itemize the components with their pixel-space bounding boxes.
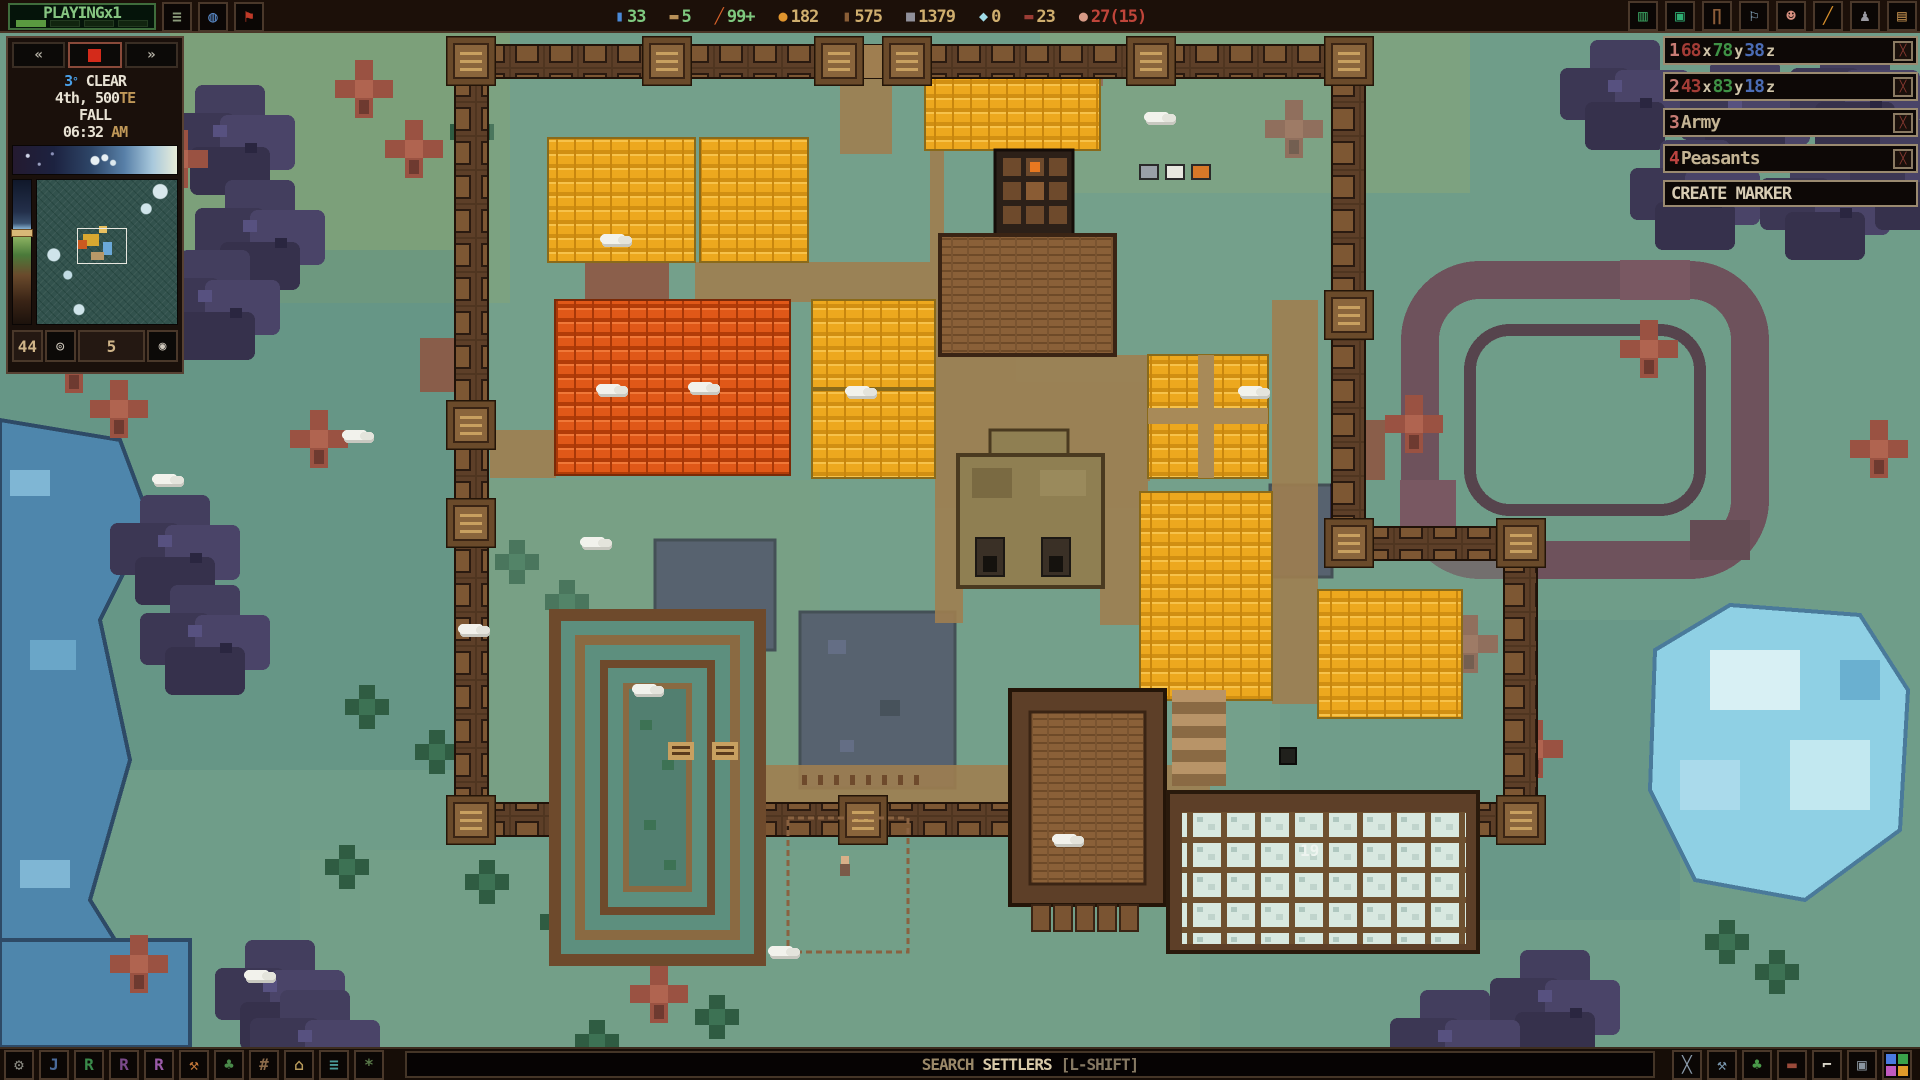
marker-x-value: 68 <box>1681 40 1701 61</box>
resource-stone[interactable]: ■1379 <box>906 7 955 27</box>
resource-settlers[interactable]: ●27(15) <box>1079 7 1146 27</box>
palette-cell <box>1886 1054 1896 1064</box>
marker-row-4[interactable]: 4 Peasants ╳ <box>1663 144 1918 173</box>
plants-icon[interactable]: ♣ <box>214 1050 244 1080</box>
marker-label: Peasants <box>1681 148 1760 169</box>
marker-y-label: y <box>1734 78 1742 96</box>
menu-list-icon-glyph: ≡ <box>172 9 182 25</box>
gem-icon-glyph: ▣ <box>1675 8 1685 24</box>
marker-z-value: 38 <box>1744 40 1764 61</box>
resource-wood[interactable]: ▮575 <box>842 7 882 27</box>
resource-vegetables[interactable]: ╱99+ <box>715 7 755 27</box>
marker-z-value: 18 <box>1744 76 1764 97</box>
dig-tool-icon-glyph: ⚒ <box>189 1057 199 1073</box>
top-bar: PLAYINGx1 ≡◍⚑ ▮33▬5╱99+●182▮575■1379◆0▬2… <box>0 0 1920 33</box>
overview-icon[interactable]: ▥ <box>1628 1 1658 31</box>
scroll-icon-glyph: ⚐ <box>1749 8 1759 24</box>
resource-meat[interactable]: ▬23 <box>1024 7 1055 27</box>
build-hammer-icon[interactable]: ⚒ <box>1707 1050 1737 1080</box>
meat-icon: ▬ <box>1024 9 1032 24</box>
play-speed-button[interactable]: PLAYINGx1 <box>8 3 156 30</box>
search-target: SETTLERS <box>983 1055 1052 1074</box>
speed-segment <box>50 20 80 27</box>
anvil-icon[interactable]: ∏ <box>1702 1 1732 31</box>
anvil-icon-glyph: ∏ <box>1712 8 1722 24</box>
minimap-viewport[interactable] <box>77 228 127 264</box>
list-panel-icon[interactable]: ≡ <box>319 1050 349 1080</box>
meat-count: 23 <box>1036 7 1054 27</box>
stairs[interactable] <box>1172 690 1226 786</box>
speed-segment <box>84 20 114 27</box>
floors-grid-icon-glyph: # <box>259 1057 269 1073</box>
field-yellow-6[interactable] <box>1140 492 1272 700</box>
marker-remove-button[interactable]: ╳ <box>1893 41 1913 61</box>
ledger-icon[interactable]: ▤ <box>1887 1 1917 31</box>
structures-icon[interactable]: ⌂ <box>284 1050 314 1080</box>
marker-y-value: 78 <box>1713 40 1733 61</box>
time-value: 06:32 <box>63 123 103 141</box>
water-count: 33 <box>627 7 645 27</box>
speed-controls: « » <box>12 42 178 68</box>
lock-icon[interactable]: ▣ <box>1847 1050 1877 1080</box>
armor-icon-glyph: ♟ <box>1860 8 1870 24</box>
lock-icon-glyph: ▣ <box>1857 1057 1867 1073</box>
marker-row-2[interactable]: 2 43 x 83 y 18 z ╳ <box>1663 72 1918 101</box>
ledger-icon-glyph: ▤ <box>1897 8 1907 24</box>
game-screen: 19 <box>0 0 1920 1080</box>
bottom-bar: ⚙JRRR⚒♣#⌂≡* SEARCH SETTLERS [L-SHIFT] ╳⚒… <box>0 1047 1920 1080</box>
search-settlers-bar[interactable]: SEARCH SETTLERS [L-SHIFT] <box>405 1051 1655 1078</box>
marker-y-value: 83 <box>1713 76 1733 97</box>
speed-segment <box>118 20 148 27</box>
marker-remove-button[interactable]: ╳ <box>1893 113 1913 133</box>
marker-row-1[interactable]: 1 68 x 78 y 38 z ╳ <box>1663 36 1918 65</box>
cancel-cross-icon-glyph: ╳ <box>1682 1057 1692 1073</box>
marker-z-label: z <box>1766 42 1774 60</box>
season-label: FALL <box>12 107 178 124</box>
bed-icon[interactable]: ▬ <box>1777 1050 1807 1080</box>
frame-corner-icon-glyph: ⌐ <box>1822 1057 1832 1073</box>
marker-index: 4 <box>1669 148 1679 169</box>
settlers-icon: ● <box>1079 9 1087 24</box>
marker-remove-button[interactable]: ╳ <box>1893 77 1913 97</box>
world-icon[interactable]: ◍ <box>198 2 228 32</box>
settings-gear-icon-glyph: ⚙ <box>14 1057 24 1073</box>
jobs-icon-glyph: J <box>49 1057 59 1073</box>
wand-icon[interactable]: ╱ <box>1813 1 1843 31</box>
zones-icon[interactable]: R <box>109 1050 139 1080</box>
top-right-icons: ▥▣∏⚐☻╱♟▤ <box>1628 1 1917 31</box>
zones-icon-glyph: R <box>119 1057 129 1073</box>
minimap-zoom-in-button[interactable]: ◉ <box>147 330 178 362</box>
clover-icon[interactable]: ♣ <box>1742 1050 1772 1080</box>
areas-icon[interactable]: R <box>144 1050 174 1080</box>
floors-grid-icon[interactable]: # <box>249 1050 279 1080</box>
clover-icon-glyph: ♣ <box>1752 1057 1762 1073</box>
temperature-unit: ° <box>72 75 78 88</box>
marker-z-label: z <box>1766 78 1774 96</box>
search-hotkey: [L-SHIFT] <box>1061 1055 1139 1074</box>
marker-remove-button[interactable]: ╳ <box>1893 149 1913 169</box>
build-hammer-icon-glyph: ⚒ <box>1717 1057 1727 1073</box>
storage-yard[interactable]: 19 <box>1168 792 1478 952</box>
marker-x-value: 43 <box>1681 76 1701 97</box>
fruit-icon: ● <box>779 9 787 24</box>
resource-ice[interactable]: ◆0 <box>979 7 1000 27</box>
wood-icon: ▮ <box>842 9 850 24</box>
crate-row[interactable] <box>1032 905 1138 931</box>
settings-gear-icon[interactable]: ⚙ <box>4 1050 34 1080</box>
fruit-count: 182 <box>791 7 819 27</box>
list-panel-icon-glyph: ≡ <box>329 1057 339 1073</box>
speed-segment <box>16 20 46 27</box>
cancel-cross-icon[interactable]: ╳ <box>1672 1050 1702 1080</box>
effects-icon[interactable]: * <box>354 1050 384 1080</box>
temperature-value: 3 <box>64 72 72 90</box>
marker-x-label: x <box>1703 42 1711 60</box>
weather-condition: CLEAR <box>86 72 126 90</box>
rations-icon: ▬ <box>670 9 678 24</box>
stop-icon <box>88 49 101 62</box>
rooms-icon[interactable]: R <box>74 1050 104 1080</box>
date-era: TE <box>119 89 135 107</box>
marker-x-label: x <box>1703 78 1711 96</box>
workshop-building[interactable] <box>1010 690 1165 905</box>
temperature-line: 3° CLEAR <box>12 73 178 90</box>
menu-list-icon[interactable]: ≡ <box>162 2 192 32</box>
time-meridiem: AM <box>111 123 127 141</box>
status-panel: « » 3° CLEAR 4th, 500TE FALL 06:32 AM <box>6 36 184 374</box>
settlers-count: 27(15) <box>1091 7 1146 27</box>
kiln-building[interactable] <box>958 430 1103 587</box>
bed-icon-glyph: ▬ <box>1787 1057 1797 1073</box>
date-value: 4th, 500 <box>55 89 119 107</box>
create-marker-button[interactable]: CREATE MARKER <box>1663 180 1918 207</box>
resource-fruit[interactable]: ●182 <box>779 7 819 27</box>
market-stalls[interactable] <box>1140 165 1210 179</box>
elevation-marker[interactable] <box>11 229 33 237</box>
vegetables-icon: ╱ <box>715 9 723 24</box>
flag-icon[interactable]: ⚑ <box>234 2 264 32</box>
field-yellow-5[interactable] <box>812 390 935 478</box>
wand-icon-glyph: ╱ <box>1823 8 1833 24</box>
top-left-icons: ≡◍⚑ <box>162 2 264 32</box>
flag-icon-glyph: ⚑ <box>244 9 254 25</box>
counter-right: 5 <box>78 330 146 362</box>
armor-icon[interactable]: ♟ <box>1850 1 1880 31</box>
marker-label: Army <box>1681 112 1720 133</box>
field-yellow-4[interactable] <box>812 300 935 388</box>
marker-y-label: y <box>1734 42 1742 60</box>
time-line: 06:32 AM <box>12 124 178 141</box>
date-line: 4th, 500TE <box>12 90 178 107</box>
stone-count: 1379 <box>918 7 955 27</box>
gem-icon[interactable]: ▣ <box>1665 1 1695 31</box>
smokehouse[interactable] <box>995 150 1073 235</box>
bottom-left-tools: ⚙JRRR⚒♣#⌂≡* <box>4 1050 384 1080</box>
scroll-icon[interactable]: ⚐ <box>1739 1 1769 31</box>
speed-faster-button[interactable]: » <box>125 42 178 68</box>
daylight-bar[interactable] <box>12 145 178 175</box>
field-yellow-7[interactable] <box>1318 590 1462 718</box>
overview-icon-glyph: ▥ <box>1638 8 1648 24</box>
ice-count: 0 <box>991 7 1000 27</box>
rooms-icon-glyph: R <box>84 1057 94 1073</box>
palette-cell <box>1898 1066 1908 1076</box>
face-icon[interactable]: ☻ <box>1776 1 1806 31</box>
markers-panel: 1 68 x 78 y 38 z ╳ 2 43 x 83 y 18 z ╳ 3 … <box>1663 36 1918 207</box>
storage-count-label: 19 <box>1300 841 1319 860</box>
wood-count: 575 <box>854 7 882 27</box>
rations-count: 5 <box>682 7 691 27</box>
jobs-icon[interactable]: J <box>39 1050 69 1080</box>
coal-bin[interactable] <box>1280 748 1296 764</box>
palette-cell <box>1898 1054 1908 1064</box>
longhouse-roof[interactable] <box>940 235 1115 355</box>
field-yellow-2[interactable] <box>700 138 808 262</box>
resource-rations[interactable]: ▬5 <box>670 7 691 27</box>
marker-index: 1 <box>1669 40 1679 61</box>
game-map-container[interactable]: 19 <box>0 33 1920 1047</box>
vegetables-count: 99+ <box>727 7 755 27</box>
face-icon-glyph: ☻ <box>1786 8 1796 24</box>
marker-index: 2 <box>1669 76 1679 97</box>
nursery-garden[interactable] <box>555 615 760 960</box>
minimap[interactable] <box>36 179 178 325</box>
counter-left: 44 <box>12 330 43 362</box>
plants-icon-glyph: ♣ <box>224 1057 234 1073</box>
field-orange[interactable] <box>555 300 790 475</box>
play-state-label: PLAYINGx1 <box>10 5 154 21</box>
resource-bar: ▮33▬5╱99+●182▮575■1379◆0▬23●27(15) <box>615 0 1146 33</box>
bottom-right-tools: ╳⚒♣▬⌐▣ <box>1672 1050 1912 1080</box>
game-map[interactable]: 19 <box>0 33 1920 1047</box>
pause-button[interactable] <box>68 42 121 68</box>
settler-figure[interactable] <box>840 856 850 876</box>
weather-readout: 3° CLEAR 4th, 500TE FALL 06:32 AM <box>12 73 178 141</box>
marker-row-3[interactable]: 3 Army ╳ <box>1663 108 1918 137</box>
effects-icon-glyph: * <box>364 1057 374 1073</box>
areas-icon-glyph: R <box>154 1057 164 1073</box>
minimap-zoom-out-button[interactable]: ◎ <box>45 330 76 362</box>
search-word: SEARCH <box>922 1055 974 1074</box>
stone-icon: ■ <box>906 9 914 24</box>
palette-grid-icon[interactable] <box>1882 1050 1912 1080</box>
dig-tool-icon[interactable]: ⚒ <box>179 1050 209 1080</box>
fire-pixel <box>1030 162 1040 172</box>
water-icon: ▮ <box>615 9 623 24</box>
world-icon-glyph: ◍ <box>208 9 218 25</box>
palette-cell <box>1886 1066 1896 1076</box>
elevation-slider[interactable] <box>12 179 32 325</box>
resource-water[interactable]: ▮33 <box>615 7 646 27</box>
marker-index: 3 <box>1669 112 1679 133</box>
speed-slower-button[interactable]: « <box>12 42 65 68</box>
ice-icon: ◆ <box>979 9 987 24</box>
structures-icon-glyph: ⌂ <box>294 1057 304 1073</box>
minimap-controls: 44 ◎ 5 ◉ <box>12 330 178 362</box>
frame-corner-icon[interactable]: ⌐ <box>1812 1050 1842 1080</box>
